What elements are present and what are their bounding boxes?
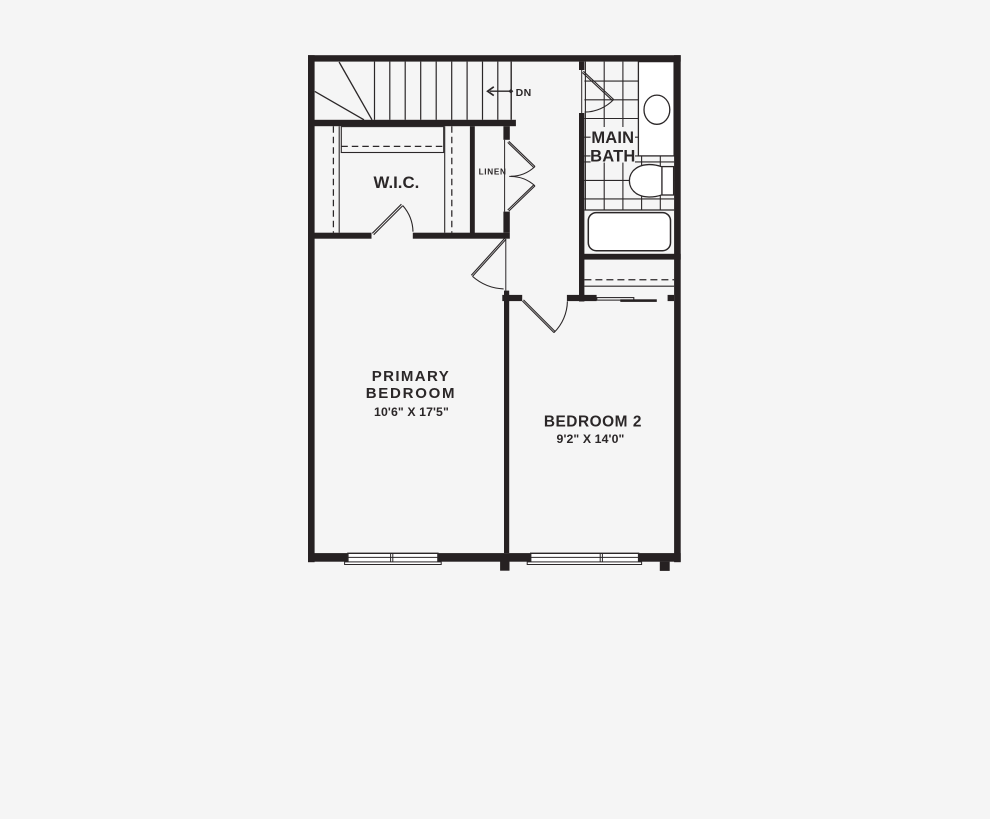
svg-text:9'2" X 14'0": 9'2" X 14'0" <box>557 432 625 446</box>
svg-text:BEDROOM 2: BEDROOM 2 <box>544 414 642 431</box>
svg-text:MAIN: MAIN <box>591 129 634 147</box>
svg-text:10'6" X 17'5": 10'6" X 17'5" <box>374 405 449 419</box>
svg-text:BEDROOM: BEDROOM <box>366 385 457 402</box>
svg-text:PRIMARY: PRIMARY <box>372 368 450 385</box>
svg-text:LINEN: LINEN <box>479 167 507 176</box>
svg-text:W.I.C.: W.I.C. <box>374 173 420 192</box>
svg-text:DN: DN <box>516 87 532 99</box>
svg-text:BATH: BATH <box>590 147 635 165</box>
